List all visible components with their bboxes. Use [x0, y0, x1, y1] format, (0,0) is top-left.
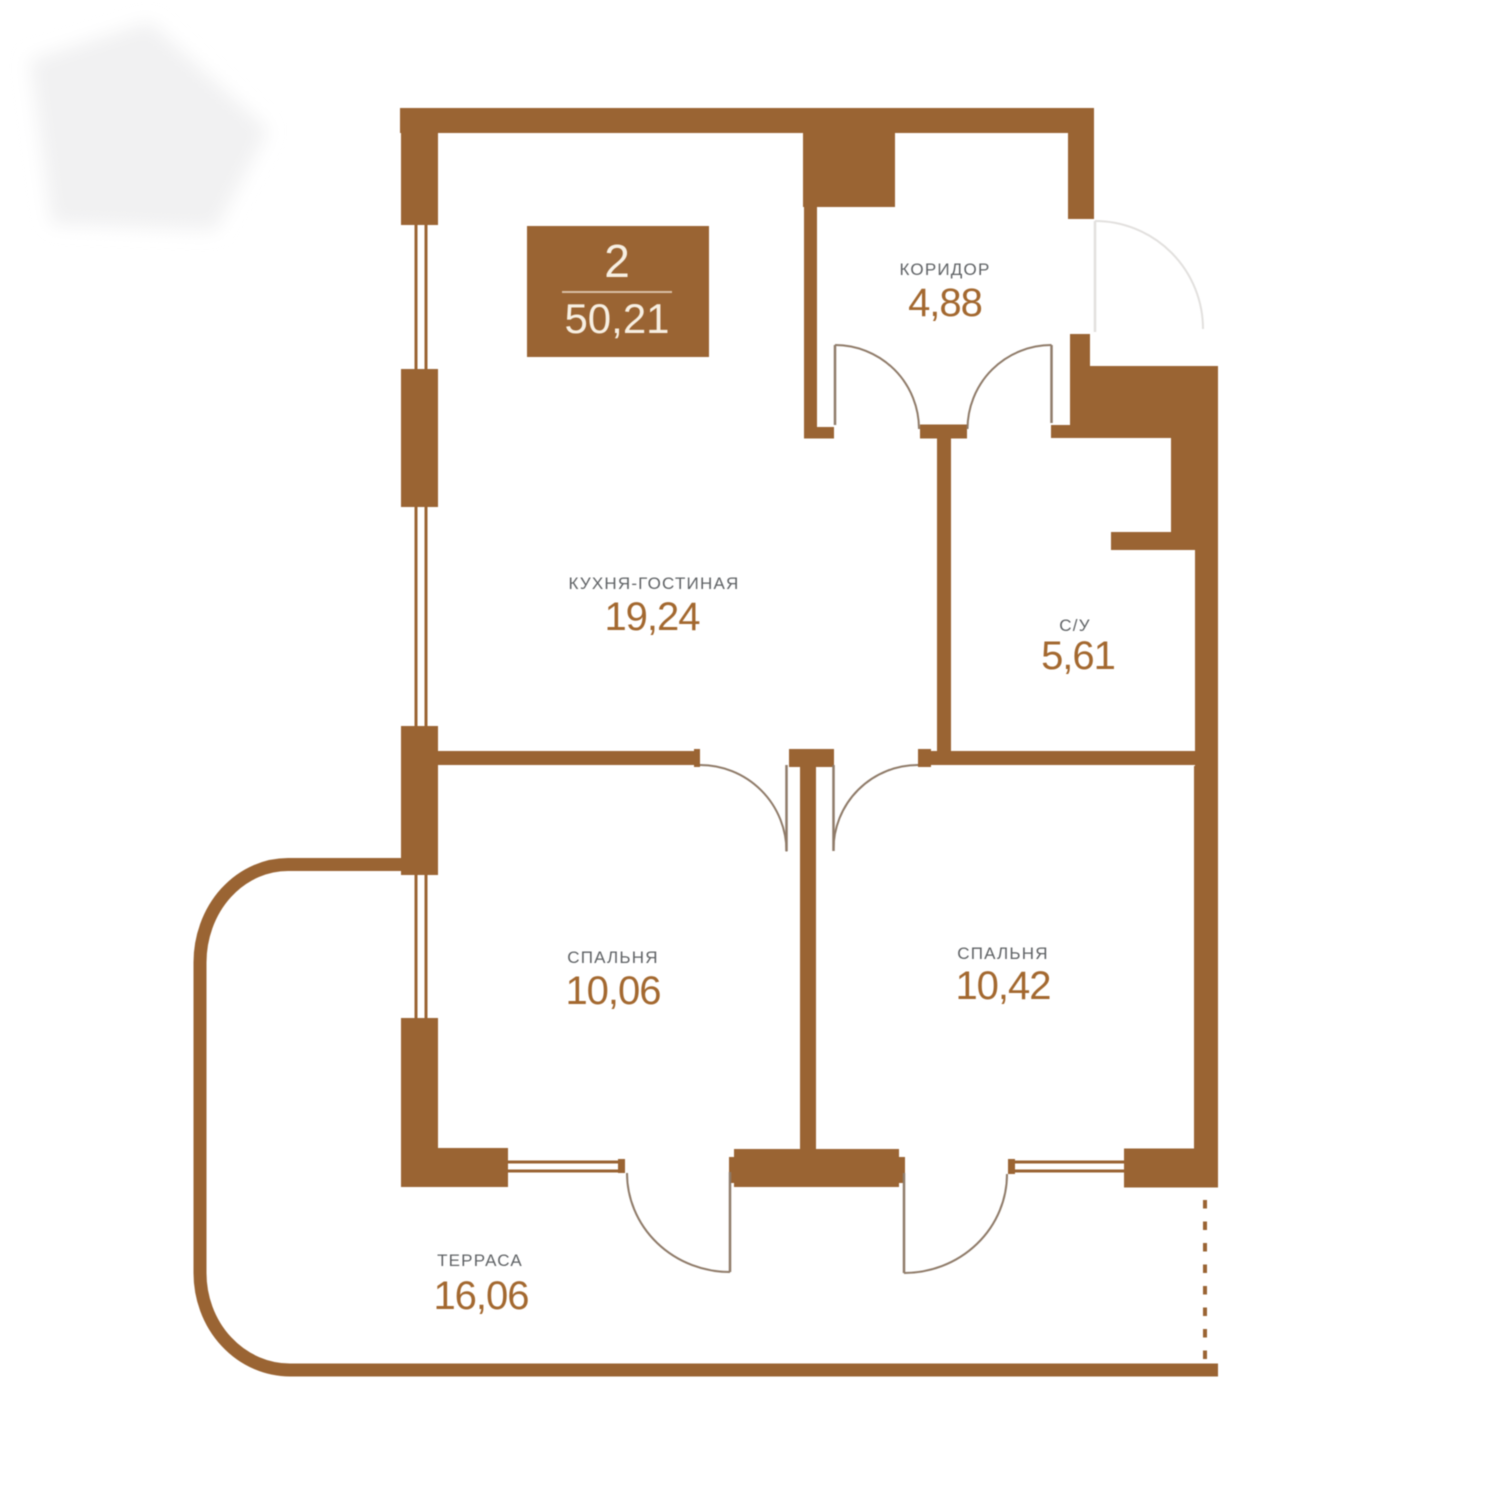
- svg-text:ТЕРРАСА: ТЕРРАСА: [437, 1251, 523, 1270]
- svg-text:16,06: 16,06: [433, 1274, 528, 1318]
- svg-text:4,88: 4,88: [908, 281, 982, 325]
- svg-text:С/У: С/У: [1059, 616, 1090, 635]
- svg-text:10,42: 10,42: [955, 964, 1050, 1008]
- svg-text:СПАЛЬНЯ: СПАЛЬНЯ: [567, 948, 658, 967]
- svg-text:50,21: 50,21: [564, 295, 669, 342]
- svg-text:СПАЛЬНЯ: СПАЛЬНЯ: [957, 944, 1048, 963]
- svg-text:19,24: 19,24: [604, 595, 700, 639]
- svg-text:10,06: 10,06: [565, 969, 660, 1013]
- svg-text:КОРИДОР: КОРИДОР: [900, 260, 991, 279]
- svg-text:2: 2: [604, 235, 630, 287]
- svg-text:КУХНЯ-ГОСТИНАЯ: КУХНЯ-ГОСТИНАЯ: [569, 574, 740, 593]
- svg-text:5,61: 5,61: [1041, 634, 1115, 678]
